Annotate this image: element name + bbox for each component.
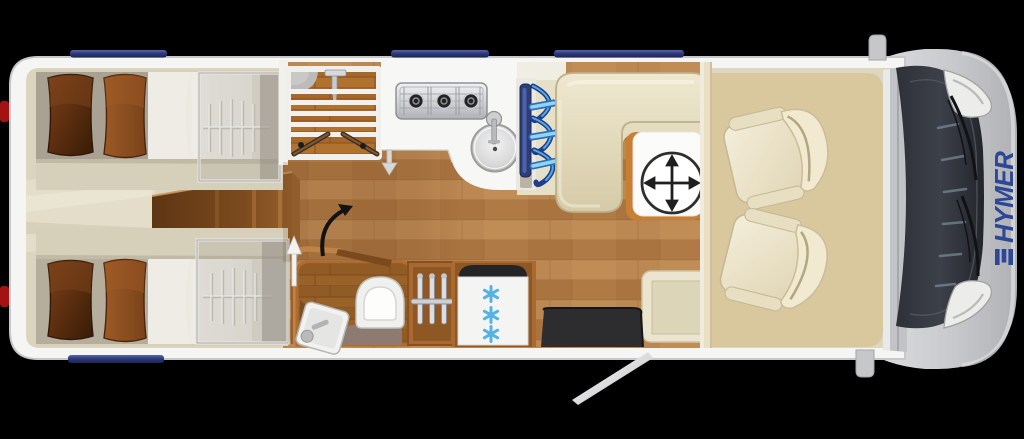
svg-text:HYMER: HYMER bbox=[989, 151, 1019, 243]
